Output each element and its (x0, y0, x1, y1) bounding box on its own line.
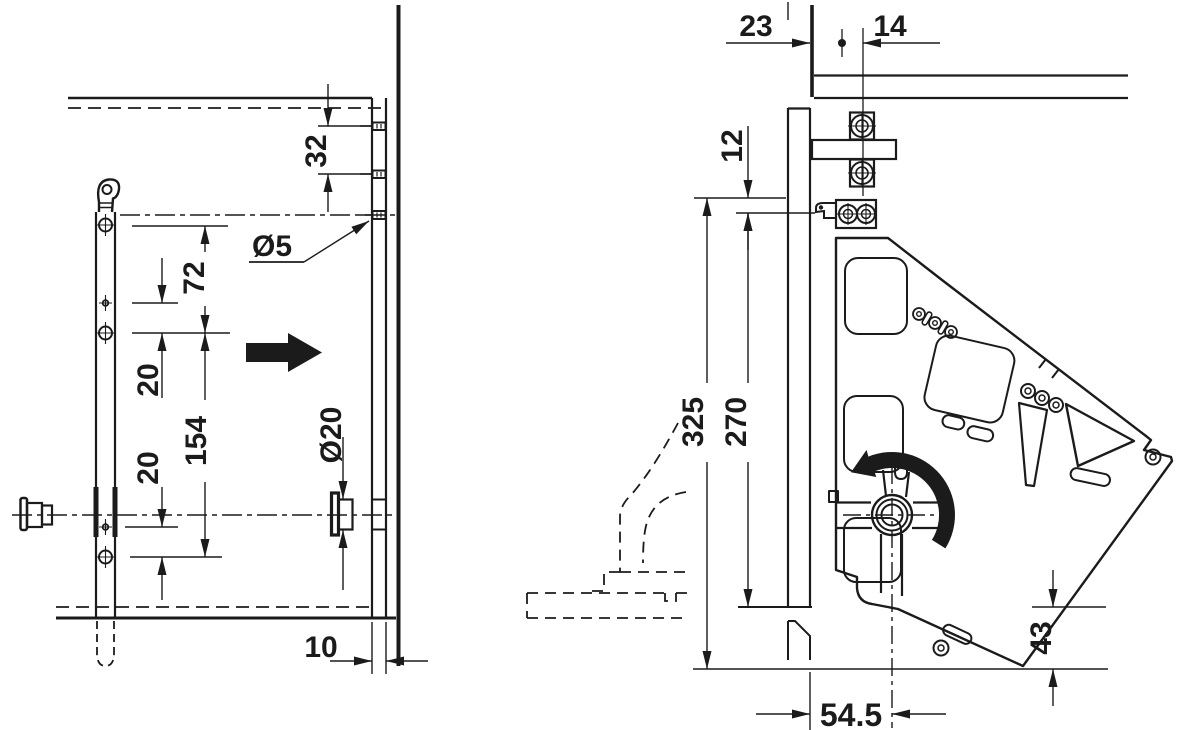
ghost-flap-outline (527, 423, 688, 618)
dim-label-23: 23 (739, 10, 772, 43)
right-dimensions: 23 14 12 325 270 54.5 (677, 10, 1108, 730)
cutout-triangle (1066, 404, 1134, 466)
rail-ghost-extension (97, 621, 114, 666)
dim-label-72: 72 (178, 261, 211, 294)
slot (1070, 467, 1112, 487)
dim-label-10: 10 (304, 631, 337, 664)
dim-label-12: 12 (716, 129, 749, 162)
dim-label-32: 32 (300, 134, 333, 167)
mounting-rail (94, 179, 120, 666)
cabinet-structure (738, 2, 1128, 660)
rail-clamp-right (113, 487, 118, 537)
front-edge-strip (372, 98, 386, 618)
dim-label-154: 154 (180, 416, 213, 466)
dim-label-270: 270 (720, 397, 753, 447)
dim-label-20-upper: 20 (132, 363, 165, 396)
screw-hole-row-upper (913, 308, 957, 338)
cutout (845, 258, 907, 334)
lift-mechanism-plate (829, 238, 1172, 728)
direction-arrow-icon (246, 333, 322, 372)
dim-label-dia5: Ø5 (252, 230, 292, 263)
dim-label-14: 14 (873, 10, 907, 43)
cutout (922, 333, 1017, 425)
edge-strip-below (788, 621, 810, 660)
cutout-wedge (1019, 403, 1047, 486)
rail-clamp-left (94, 487, 99, 537)
side-panel-front-edge (788, 108, 810, 607)
drill-point-dot (838, 39, 846, 47)
edge-extension-lines (372, 622, 386, 674)
top-fixing-bracket (812, 112, 896, 187)
dim-label-43: 43 (1025, 621, 1058, 654)
right-view: 23 14 12 325 270 54.5 (527, 2, 1172, 730)
dia20-fitting (332, 493, 387, 535)
dim-label-dia20: Ø20 (315, 407, 348, 464)
top-panel-section (814, 76, 1128, 99)
dim-label-325: 325 (677, 397, 710, 447)
connecting-bolt-icon (21, 498, 53, 530)
slot (966, 425, 994, 443)
dim-label-20-lower: 20 (132, 451, 165, 484)
dim-label-54-5: 54.5 (820, 697, 882, 730)
bottom-screw-hole (934, 641, 949, 656)
installation-drawing: 32 Ø5 72 20 154 20 (0, 0, 1180, 730)
front-hook-bracket (816, 200, 877, 228)
left-view: 32 Ø5 72 20 154 20 (12, 5, 428, 674)
technical-drawing-page: 32 Ø5 72 20 154 20 (0, 0, 1180, 730)
plate-outline (836, 238, 1172, 666)
